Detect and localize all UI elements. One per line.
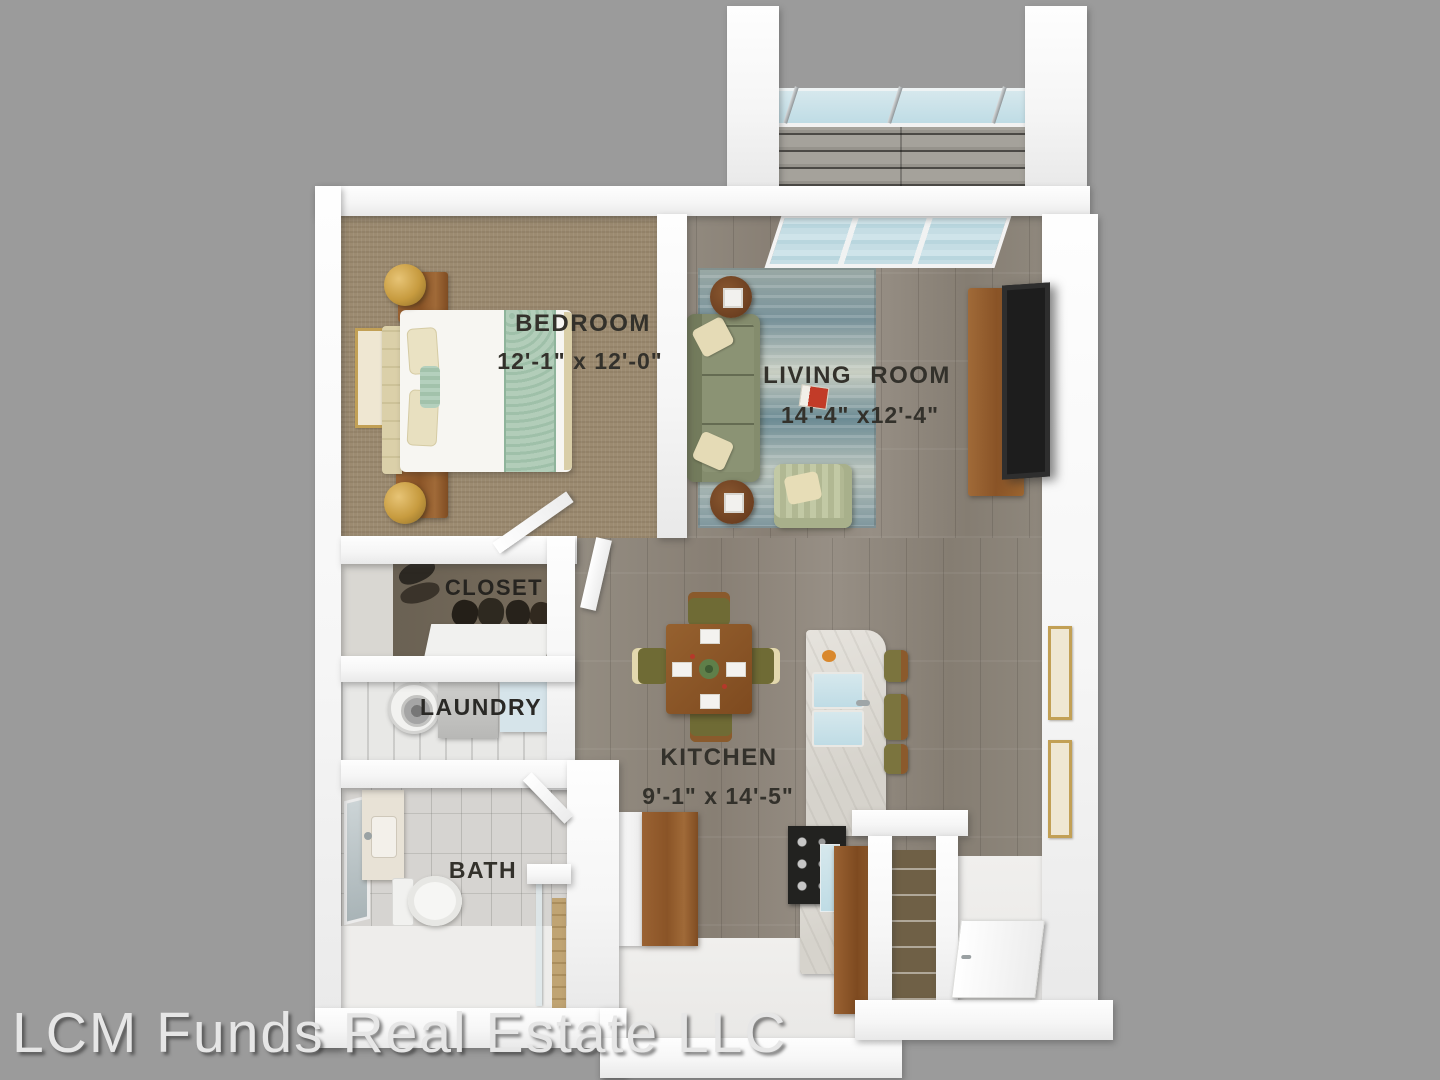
entry-closet-left-wall — [868, 836, 892, 1014]
centerpiece-plant — [699, 659, 719, 679]
candle — [724, 493, 744, 513]
bath-label: BATH — [449, 857, 517, 884]
placemat — [700, 629, 720, 644]
entry-closet-interior — [892, 850, 936, 1000]
round-side-table — [710, 276, 752, 318]
balcony-right-wall — [1025, 6, 1087, 188]
bar-stool — [884, 694, 908, 740]
candle — [723, 288, 743, 308]
shower-threshold — [552, 898, 566, 1010]
kitchen-dimensions: 9'-1" x 14'-5" — [642, 783, 794, 810]
table-lamp — [384, 482, 426, 524]
bath-partition-wall — [527, 864, 571, 884]
sofa — [686, 314, 760, 482]
watermark-text: LCM Funds Real Estate LLC — [12, 1000, 788, 1066]
table-decor — [722, 684, 727, 689]
faucet-icon — [856, 700, 870, 706]
bed-accent-pillow — [420, 366, 440, 408]
laundry-label: LAUNDRY — [420, 694, 542, 721]
food-item — [822, 650, 836, 662]
dining-table — [666, 624, 752, 714]
dining-chair — [632, 648, 668, 684]
shower-floor — [341, 926, 567, 1010]
bed-headboard — [382, 326, 402, 474]
bedroom-bottom-wall — [341, 536, 577, 564]
table-decor — [690, 654, 695, 659]
dining-chair — [688, 592, 730, 626]
outer-wall-right — [1042, 214, 1098, 1014]
bath-sink — [371, 816, 397, 858]
shower-glass — [536, 884, 542, 1006]
bedroom-wall-art — [355, 328, 385, 428]
entry-wall-art — [1048, 740, 1072, 838]
kitchen-island — [806, 630, 886, 836]
placemat — [672, 662, 692, 677]
bedroom-dimensions: 12'-1" x 12'-0" — [497, 348, 662, 375]
faucet-icon — [364, 832, 372, 840]
island-sink — [812, 672, 862, 746]
balcony-glass-railing — [779, 88, 1025, 127]
outer-wall-bottom-right — [855, 1000, 1113, 1040]
door-handle-icon — [961, 955, 971, 959]
table-lamp — [384, 264, 426, 306]
kitchen-label: KITCHEN — [660, 744, 777, 772]
armchair-pillow — [783, 471, 822, 505]
sink-basin — [812, 710, 864, 747]
balcony-left-wall — [727, 6, 779, 188]
entry-top-wall — [852, 810, 968, 836]
bar-stool — [884, 650, 908, 682]
closet-label: CLOSET — [445, 575, 543, 601]
bedroom-living-wall — [657, 214, 687, 538]
counter-left — [618, 812, 642, 946]
armchair — [774, 464, 852, 528]
railing-post-icon — [991, 86, 1007, 123]
floor-plan-render: BEDROOM 12'-1" x 12'-0" LIVING ROOM 14'-… — [0, 0, 1440, 1080]
round-side-table — [710, 480, 754, 524]
placemat — [726, 662, 746, 677]
living-room-label: LIVING ROOM — [763, 362, 951, 390]
bath-vanity — [362, 790, 404, 880]
tv — [1002, 282, 1050, 479]
entry-door — [951, 920, 1045, 998]
counter-left-cabinet — [642, 812, 698, 946]
railing-post-icon — [887, 86, 903, 123]
living-room-window — [764, 214, 1012, 268]
entry-wall-art — [1048, 626, 1072, 720]
outer-wall-top — [315, 186, 1090, 216]
closet-laundry-wall — [341, 656, 575, 682]
bath-right-wall — [567, 760, 619, 1014]
placemat — [700, 694, 720, 709]
outer-wall-left — [315, 186, 341, 1048]
living-room-dimensions: 14'-4" x12'-4" — [781, 402, 939, 429]
balcony-deck — [779, 118, 1025, 188]
railing-post-icon — [783, 86, 799, 123]
bedroom-label: BEDROOM — [515, 310, 651, 338]
bar-stool — [884, 744, 908, 774]
